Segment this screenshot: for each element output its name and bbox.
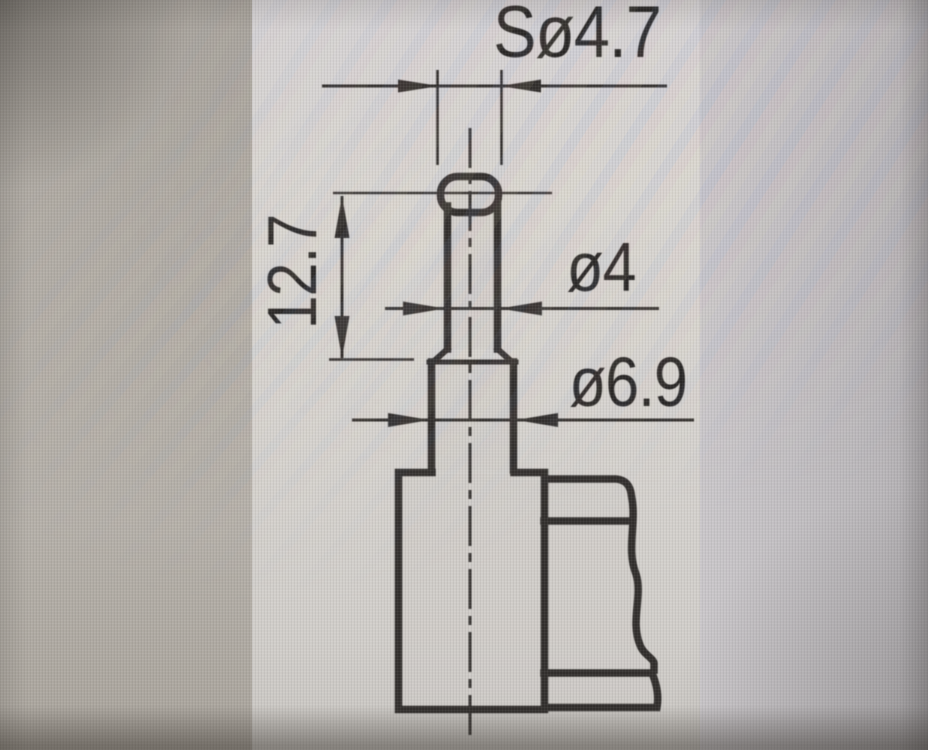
contact-point-technical-drawing: Sø4.7 12.7 ø4 ø6.9: [0, 0, 928, 750]
dimension-label-mount-diameter: ø6.9: [569, 343, 687, 421]
dimension-tip-length: [329, 196, 414, 360]
dimension-label-stem-diameter: ø4: [566, 228, 635, 306]
arrowhead: [500, 80, 541, 93]
dimension-sphere-diameter: [322, 70, 667, 165]
arrowhead: [398, 80, 439, 93]
arrowhead: [403, 302, 445, 316]
arrowhead: [335, 316, 350, 358]
arrowhead: [500, 302, 542, 316]
photographed-screen: Sø4.7 12.7 ø4 ø6.9: [0, 0, 928, 750]
dimension-label-sphere-diameter: Sø4.7: [493, 0, 661, 73]
arrowhead: [516, 413, 558, 427]
arrowhead: [388, 413, 430, 427]
arrowhead: [335, 196, 350, 238]
dimension-label-tip-length: 12.7: [253, 215, 331, 330]
